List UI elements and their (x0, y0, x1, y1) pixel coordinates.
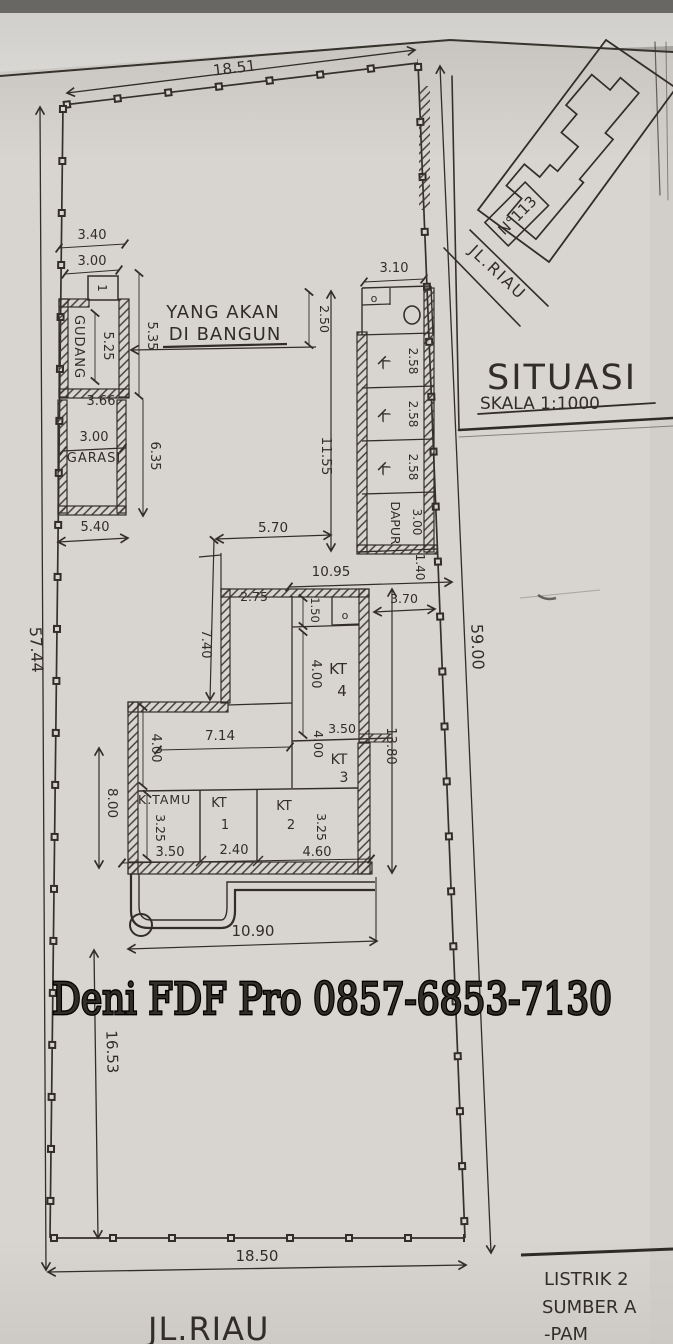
room-kt3-number: 3 (340, 770, 349, 786)
kt4-wall-right (359, 589, 369, 743)
dim-front-yard: 16.53 (102, 1030, 121, 1074)
garasi-wall-left (58, 400, 67, 513)
garasi-wall-bottom (58, 506, 126, 515)
dim-garasi-width: 3.00 (80, 430, 109, 445)
house-wall-bottom (128, 862, 372, 874)
street-label-bottom: JL.RIAU (146, 1310, 269, 1344)
dim-side-gap: 3.70 (390, 591, 418, 606)
annotation-line1: YANG AKAN (165, 302, 280, 323)
dim-kt2-len: 3.25 (314, 813, 329, 841)
watermark-text: Deni FDF Pro 0857-6853-7130 (52, 974, 612, 1025)
note-pam: -PAM (544, 1324, 588, 1344)
dim-kt1-w: 2.40 (220, 843, 249, 858)
dim-service-len: 11.55 (318, 437, 334, 476)
house-wall-right (358, 743, 370, 874)
dim-mid-offset: 5.70 (258, 520, 288, 536)
dim-k-b: 2.58 (406, 401, 420, 428)
room-kt2-number: 2 (287, 818, 295, 833)
room-kt2-label: KT (276, 799, 292, 814)
dim-garasi-bottom: 5.40 (81, 520, 110, 535)
room-kt3-label: KT (331, 752, 348, 768)
dim-bath: 1.50 (308, 597, 322, 623)
dim-service-gap: 1.40 (413, 554, 427, 581)
room-dapur-label: DAPUR (388, 501, 403, 545)
house-wall-left (128, 702, 138, 874)
dim-garasi-side: 6.35 (147, 442, 162, 471)
room-kt1-number: 1 (221, 818, 229, 833)
dim-k-c: 2.58 (406, 454, 420, 481)
dim-kt3-len: 4.00 (311, 730, 326, 758)
neighbor-wall-hatch (419, 86, 430, 210)
dim-hall-top: 7.14 (205, 728, 235, 744)
dim-porch-width: 10.90 (232, 922, 275, 940)
dim-gudang-bottom: 3.66 (87, 394, 116, 409)
dim-hall-side: 8.00 (104, 788, 120, 818)
kt4-wall-left (221, 589, 230, 703)
dim-corridor: 7.40 (198, 630, 213, 659)
floorplan-photo: N°113 JL.RIAU SITUASI SKALA 1:1000 18.51… (0, 0, 673, 1344)
room-ktamu-label: K.TAMU (138, 792, 191, 807)
dim-kt3-top: 3.50 (328, 721, 356, 736)
room-bath-label: o (342, 609, 349, 622)
room-kt4-number: 4 (337, 682, 347, 700)
dim-gudang-width: 3.00 (78, 254, 107, 269)
dim-ktamu-w: 3.50 (156, 845, 185, 860)
entry-box-label: 1 (95, 284, 109, 292)
gudang-wall-top (59, 299, 89, 307)
dim-k-a: 2.58 (406, 348, 420, 375)
dim-service-top: 3.10 (380, 261, 409, 276)
dim-plot-bottom: 18.50 (236, 1247, 279, 1265)
gudang-wall-left (59, 299, 68, 397)
dim-plot-right: 59.00 (467, 624, 488, 670)
dim-kt2-w: 4.60 (303, 845, 332, 860)
dim-service-o: 2.50 (317, 305, 332, 333)
room-kt1-label: KT (211, 796, 227, 811)
dim-kt4-len: 4.00 (308, 660, 323, 689)
floorplan-svg: N°113 JL.RIAU SITUASI SKALA 1:1000 18.51… (0, 0, 673, 1344)
note-listrik: LISTRIK 2 (544, 1269, 629, 1290)
dim-gudang-len: 5.25 (100, 332, 115, 361)
annotation-line2: DI BANGUN (169, 324, 282, 345)
service-wall-right (424, 288, 434, 552)
kt3-wall-stub (359, 734, 392, 742)
dim-mid-len: 10.95 (312, 564, 351, 580)
room-kt4-label: KT (329, 660, 348, 678)
dim-ktamu-len: 3.25 (153, 814, 168, 842)
dim-wing-len: 13.80 (383, 727, 398, 764)
dim-gudang-top: 3.40 (78, 228, 107, 243)
room-garasi-label: GARASI (67, 451, 121, 466)
room-o-label: o (371, 292, 378, 305)
dim-plot-left: 57.44 (26, 626, 47, 673)
service-wall-left (357, 332, 367, 552)
dim-hall-left: 4.00 (148, 734, 163, 763)
note-sumber: SUMBER A (542, 1297, 637, 1318)
situasi-title: SITUASI (487, 358, 637, 398)
dim-kt4-top: 2.75 (240, 589, 268, 604)
gudang-wall-right (119, 299, 129, 397)
room-gudang-label: GUDANG (71, 315, 86, 379)
paper-right-shade (650, 60, 673, 1344)
dim-dapur-len: 3.00 (410, 509, 424, 536)
dim-gudang-side: 5.35 (144, 322, 159, 351)
